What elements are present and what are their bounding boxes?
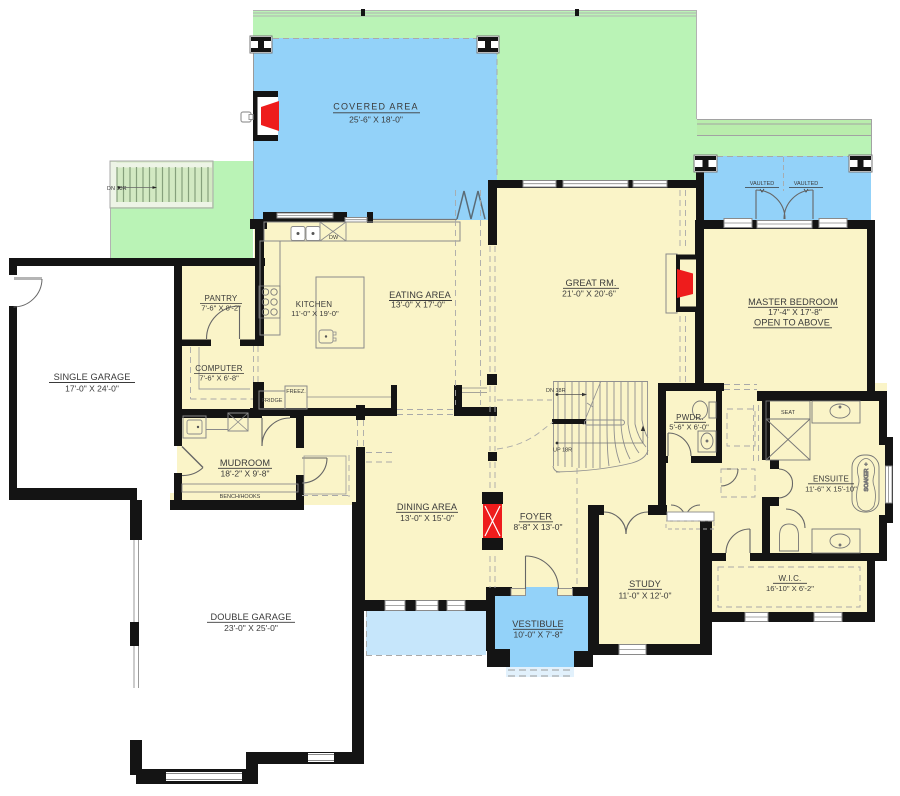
- svg-text:18'-2" X 9'-8": 18'-2" X 9'-8": [221, 469, 270, 479]
- svg-text:KITCHEN: KITCHEN: [296, 300, 333, 309]
- svg-text:PWDR.: PWDR.: [676, 413, 704, 422]
- svg-text:+: +: [864, 462, 867, 468]
- svg-text:DOUBLE GARAGE: DOUBLE GARAGE: [211, 612, 292, 622]
- svg-text:7'-6" X 8'-2": 7'-6" X 8'-2": [201, 304, 241, 313]
- svg-text:COMPUTER: COMPUTER: [195, 364, 242, 373]
- svg-text:17'-4" X 17'-8": 17'-4" X 17'-8": [768, 307, 822, 317]
- svg-text:13'-0" X 15'-0": 13'-0" X 15'-0": [400, 513, 454, 523]
- svg-text:17'-0" X 24'-0": 17'-0" X 24'-0": [65, 384, 119, 394]
- svg-text:SEAT: SEAT: [781, 410, 796, 416]
- svg-text:EATING AREA: EATING AREA: [389, 290, 451, 300]
- svg-text:ENSUITE: ENSUITE: [813, 475, 849, 484]
- svg-text:W.I.C.: W.I.C.: [779, 574, 802, 583]
- svg-text:DN 13R: DN 13R: [107, 186, 127, 192]
- svg-text:SINGLE GARAGE: SINGLE GARAGE: [54, 372, 131, 382]
- svg-text:11'-0" X 12'-0": 11'-0" X 12'-0": [618, 591, 671, 601]
- svg-text:VAULTED: VAULTED: [750, 181, 775, 187]
- svg-text:BENCH/HOOKS: BENCH/HOOKS: [220, 494, 261, 500]
- svg-text:13'-0" X 17'-0": 13'-0" X 17'-0": [391, 300, 445, 310]
- svg-text:25'-6" X 18'-0": 25'-6" X 18'-0": [349, 115, 403, 125]
- svg-text:VAULTED: VAULTED: [794, 181, 819, 187]
- svg-text:DINING AREA: DINING AREA: [397, 502, 458, 512]
- svg-text:8'-8" X 13'-0": 8'-8" X 13'-0": [514, 522, 563, 532]
- svg-text:11'-0" X 19'-0": 11'-0" X 19'-0": [291, 309, 339, 318]
- svg-text:UP 18R: UP 18R: [553, 448, 572, 454]
- svg-text:FRIDGE: FRIDGE: [262, 398, 283, 404]
- svg-text:VESTIBULE: VESTIBULE: [512, 619, 563, 629]
- svg-text:5'-6" X 6'-0": 5'-6" X 6'-0": [669, 423, 709, 432]
- svg-text:FREEZ.: FREEZ.: [286, 389, 306, 395]
- svg-text:MUDROOM: MUDROOM: [220, 458, 270, 468]
- svg-text:7'-6" X 6'-8": 7'-6" X 6'-8": [199, 374, 239, 383]
- svg-text:COVERED AREA: COVERED AREA: [333, 102, 418, 112]
- svg-text:11'-6" X 15'-10": 11'-6" X 15'-10": [805, 485, 857, 494]
- svg-text:MASTER BEDROOM: MASTER BEDROOM: [748, 297, 838, 307]
- svg-text:OPEN TO ABOVE: OPEN TO ABOVE: [754, 318, 830, 328]
- svg-text:PANTRY: PANTRY: [205, 294, 238, 303]
- svg-text:10'-0" X 7'-8": 10'-0" X 7'-8": [514, 630, 563, 640]
- svg-text:DN 18R: DN 18R: [546, 388, 566, 394]
- svg-text:GREAT RM.: GREAT RM.: [565, 278, 616, 288]
- svg-text:16'-10" X 6'-2": 16'-10" X 6'-2": [766, 584, 814, 593]
- svg-text:23'-0" X 25'-0": 23'-0" X 25'-0": [224, 623, 278, 633]
- svg-text:FOYER: FOYER: [520, 512, 552, 522]
- svg-text:21'-0" X 20'-6": 21'-0" X 20'-6": [562, 289, 616, 299]
- svg-text:DW: DW: [329, 235, 339, 241]
- svg-text:SOAKER: SOAKER: [864, 469, 870, 492]
- svg-text:STUDY: STUDY: [629, 579, 661, 589]
